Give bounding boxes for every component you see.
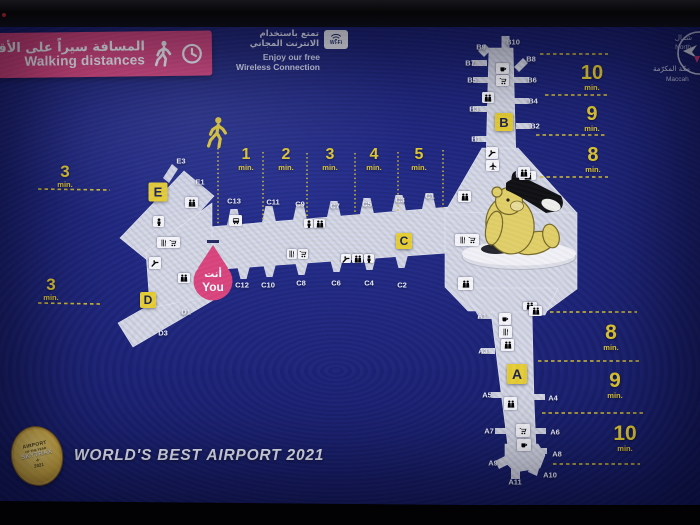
wifi-english-line1: Enjoy our free [222,52,320,63]
gate-label: A3 [478,347,488,356]
restroom-icon [518,167,530,178]
gate-label: C5 [362,200,372,209]
person-icon [304,219,313,228]
screen-bezel-top [0,0,700,27]
escalator-icon [149,257,161,269]
restroom-icon [352,254,363,263]
walk-time-e: 3min. [57,163,72,189]
walker-icon [152,39,174,67]
cafe-icon [499,313,511,325]
walk-time-c-zone: 2min. [278,147,293,172]
restroom-icon [529,306,542,316]
gate-label: D1 [181,308,191,317]
gate-label: A10 [543,471,557,480]
gate-label: B6 [527,76,537,85]
gate-label: A1 [477,312,487,321]
gate-label: C3 [395,196,405,205]
shops-icon [516,424,530,437]
escalator-icon [486,147,498,159]
award-title: WORLD'S BEST AIRPORT 2021 [74,447,324,465]
gate-label: C8 [296,279,306,288]
mecca-label-arabic: مكة المكرّمة [653,66,690,74]
food-shops-icon [455,234,479,246]
gate-label: C6 [331,279,341,288]
walk-time-c-zone: 4min. [366,147,381,172]
restroom-icon [185,197,198,208]
mecca-label: Maccah [666,76,689,83]
wifi-badge-label: Wi-Fi [330,41,342,46]
gate-label: D3 [158,329,168,338]
shops-icon [298,249,308,259]
you-marker-arabic: أنت [204,270,222,280]
qibla-marker-icon [694,56,700,63]
gate-label: C10 [261,281,275,290]
concourse-label-d: D [140,292,156,308]
wifi-english-line2: Wireless Connection [222,62,320,73]
gate-label: C12 [235,281,249,290]
display-photo: E D C B A C13 C11 C9 C7 C5 C3 C1 C12 C10… [0,0,700,525]
restroom-icon [314,219,325,228]
person-icon [153,216,164,227]
gate-label: A4 [548,394,558,403]
gate-label: B3 [469,105,479,114]
walk-time-d: 3min. [43,276,58,302]
concourse-label-a: A [507,364,527,384]
person-icon [364,254,374,263]
banner-title: Walking distances [0,54,145,70]
gate-label: C4 [364,279,374,288]
shuttle-train-icon [229,215,242,226]
camera-led-artifact [2,13,6,17]
gate-label: A11 [508,478,521,487]
wifi-arabic-line2: الانترنت المجاني [250,40,319,50]
cafe-icon [517,439,531,451]
you-marker-label: You [202,281,224,293]
restroom-icon [482,92,494,103]
restroom-icon [458,191,471,202]
gate-label: A7 [484,427,494,436]
gate-label: A5 [482,391,492,400]
gate-label: E1 [195,178,204,187]
concourse-label-c: C [396,233,412,249]
walker-icon [209,117,226,147]
badge-year: 2021 [34,463,45,470]
gate-label: A9 [488,459,498,468]
walk-time-a-zone: 8min. [603,322,618,352]
restroom-icon [458,277,473,290]
walk-time-b-zone: 9min. [584,104,599,133]
gate-label: C11 [266,198,279,207]
gate-label: B8 [526,55,536,64]
gate-label: E3 [176,157,185,166]
north-label: North [675,44,691,51]
restaurant-icon [287,249,297,259]
restroom-icon [178,273,190,283]
wifi-info: تمتع باستخدام الانترنت المجاني Wi-Fi Enj… [222,30,348,73]
walk-time-b-zone: 10min. [581,63,603,92]
gate-label: C2 [397,281,407,290]
north-label-arabic: شمال [675,35,692,43]
restroom-icon [501,339,514,351]
walk-time-c-zone: 3min. [322,147,337,172]
cafe-icon [496,63,509,74]
gate-label: C7 [330,202,340,211]
walk-time-a-zone: 10min. [613,423,636,453]
walk-time-c-zone: 1min. [238,147,253,172]
gate-label: B1 [471,135,481,144]
gate-label: C1 [425,192,435,201]
gate-label: C13 [227,197,241,206]
food-shops-icon [157,237,180,248]
gate-label: B9 [476,43,486,52]
concourse-label-b: B [495,113,513,131]
restroom-icon [504,397,517,410]
gate-label: B4 [528,97,538,106]
gate-label: C9 [295,200,305,209]
walk-time-a-zone: 9min. [607,370,622,400]
gate-label: B10 [506,38,520,47]
gate-label: B2 [530,122,540,131]
gate-transfer-icon [486,160,499,171]
gate-label: B7 [465,59,475,68]
walk-time-c-zone: 5min. [411,147,426,172]
walk-time-b-zone: 8min. [585,145,600,174]
gate-label: A6 [550,428,560,437]
shops-icon [496,75,509,86]
walking-distances-banner: المسافة سيراً على الأقدام Walking distan… [0,30,212,78]
gate-label: B5 [467,76,477,85]
gate-label: A8 [552,450,562,459]
concourse-label-e: E [149,183,168,202]
escalator-icon [341,254,351,263]
clock-icon [181,42,203,64]
restaurant-icon [499,326,512,338]
wifi-icon: Wi-Fi [324,30,348,49]
